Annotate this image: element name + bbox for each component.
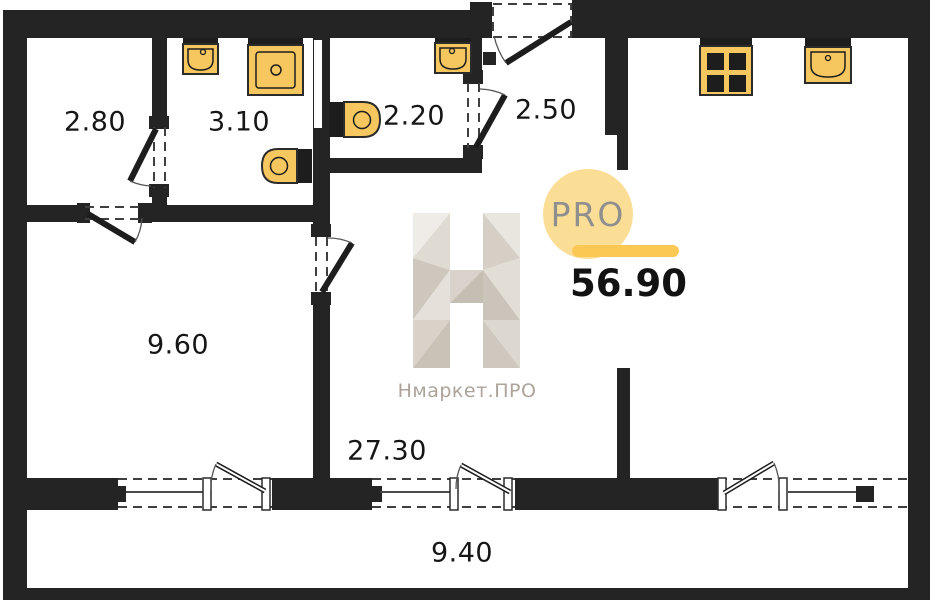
toilet-icon bbox=[262, 149, 312, 183]
room-area-label: 27.30 bbox=[347, 436, 427, 467]
sink-icon bbox=[183, 38, 218, 74]
balcony-door-icon bbox=[211, 464, 265, 491]
wall-segment bbox=[313, 295, 330, 478]
room-area-label: 9.40 bbox=[431, 538, 493, 569]
wall-segment bbox=[515, 478, 718, 510]
wall-segment bbox=[112, 486, 126, 502]
windows-layer bbox=[126, 463, 856, 510]
wall-segment bbox=[856, 486, 874, 502]
wall-segment bbox=[605, 38, 628, 135]
wall-segment bbox=[366, 486, 382, 502]
window-jamb bbox=[262, 478, 270, 510]
door-icon bbox=[476, 89, 505, 147]
room-area-label: 3.10 bbox=[208, 107, 270, 138]
floor-plan-drawing bbox=[0, 0, 935, 600]
room-area-label: 9.60 bbox=[147, 330, 209, 361]
window-jamb bbox=[504, 478, 512, 510]
door-icon bbox=[130, 129, 156, 186]
room-area-label: 2.80 bbox=[64, 107, 126, 138]
toilet-icon bbox=[329, 102, 380, 137]
sink-icon bbox=[435, 38, 471, 73]
door-jamb bbox=[311, 224, 331, 237]
nmarket-logo-icon bbox=[413, 213, 520, 368]
kitchen-sink-icon bbox=[805, 38, 851, 83]
door-icon bbox=[322, 238, 352, 292]
wall-segment bbox=[617, 135, 628, 170]
wall-segment bbox=[152, 38, 167, 127]
wall-segment bbox=[145, 205, 330, 222]
door-jamb bbox=[149, 184, 169, 197]
wall-segment bbox=[330, 158, 482, 173]
wall-segment bbox=[3, 10, 27, 598]
stove-icon bbox=[700, 38, 752, 95]
window-jamb bbox=[203, 478, 211, 510]
door-jamb bbox=[311, 292, 331, 305]
wall-segment bbox=[572, 0, 908, 38]
wall-segment bbox=[908, 0, 930, 598]
wall-segment bbox=[27, 205, 85, 222]
total-area-value: 56.90 bbox=[570, 262, 682, 305]
room-area-label: 2.50 bbox=[515, 95, 577, 126]
washing-machine-icon bbox=[248, 38, 303, 95]
room-area-label: 2.20 bbox=[383, 101, 445, 132]
wall-segment bbox=[483, 52, 496, 65]
wall-segment bbox=[3, 588, 930, 600]
watermark-text: Нмаркет.ПРО bbox=[398, 380, 537, 402]
entry-door-icon bbox=[494, 22, 571, 63]
wall-segment bbox=[272, 478, 372, 510]
wall-segment bbox=[27, 478, 118, 510]
door-jamb bbox=[138, 203, 152, 223]
wall-segment bbox=[617, 368, 630, 478]
window-jamb bbox=[779, 478, 787, 510]
wall-segment bbox=[470, 2, 492, 38]
wall-segment bbox=[3, 10, 470, 38]
pro-badge-label: PRO bbox=[551, 195, 626, 234]
floor-plan: 2.80 3.10 2.20 2.50 9.60 27.30 9.40 PRO … bbox=[0, 0, 935, 600]
badge-underline bbox=[572, 245, 679, 257]
wall-niche bbox=[314, 40, 322, 128]
